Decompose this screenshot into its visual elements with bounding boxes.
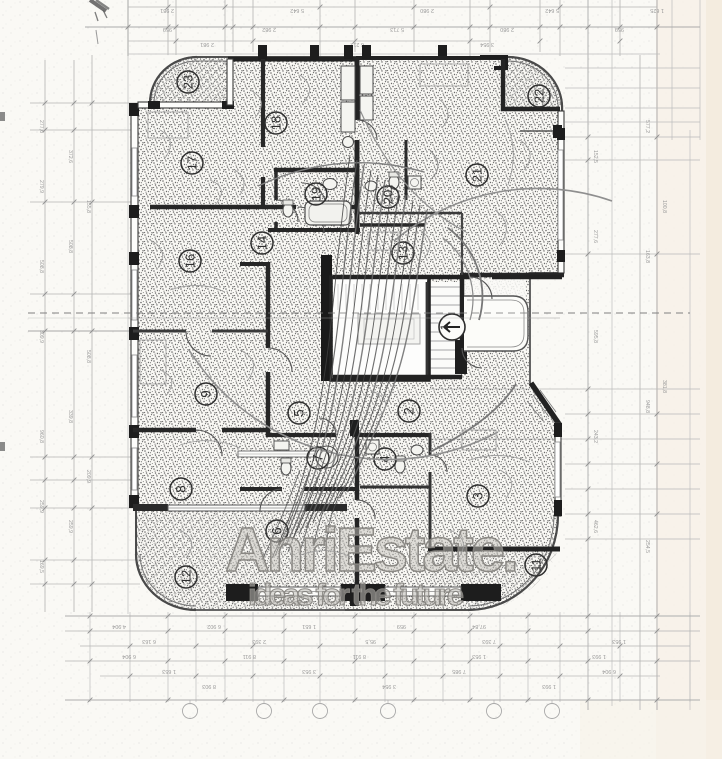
- svg-text:1 993: 1 993: [592, 653, 606, 659]
- svg-text:5 642: 5 642: [545, 7, 559, 13]
- svg-text:5 713: 5 713: [390, 26, 404, 32]
- svg-text:960,8: 960,8: [38, 430, 44, 443]
- svg-text:2 393: 2 393: [252, 638, 266, 644]
- svg-text:ideas for the future: ideas for the future: [248, 577, 464, 612]
- svg-text:948,8: 948,8: [644, 400, 650, 413]
- svg-text:155,8: 155,8: [85, 200, 91, 213]
- svg-text:21: 21: [470, 168, 485, 182]
- svg-text:959: 959: [397, 623, 406, 629]
- svg-text:2: 2: [402, 407, 417, 415]
- svg-text:1 993: 1 993: [542, 683, 556, 689]
- svg-text:8 911: 8 911: [353, 653, 366, 659]
- svg-text:11: 11: [529, 558, 544, 572]
- svg-text:12: 12: [179, 570, 194, 584]
- svg-text:1 651: 1 651: [302, 623, 316, 629]
- svg-text:577,2: 577,2: [644, 120, 650, 133]
- svg-text:209,9: 209,9: [85, 470, 91, 483]
- svg-text:595,8: 595,8: [592, 330, 598, 343]
- svg-text:16: 16: [183, 254, 198, 268]
- svg-text:97,84: 97,84: [472, 623, 486, 629]
- svg-text:9: 9: [199, 390, 214, 398]
- svg-text:7 393: 7 393: [482, 638, 496, 644]
- svg-text:8 903: 8 903: [202, 683, 216, 689]
- svg-text:4 904: 4 904: [112, 623, 126, 629]
- svg-text:95,5: 95,5: [365, 638, 376, 644]
- svg-text:7 985: 7 985: [452, 668, 466, 674]
- svg-text:6 904: 6 904: [122, 653, 136, 659]
- svg-text:2 981: 2 981: [200, 41, 214, 47]
- svg-text:5 642: 5 642: [290, 7, 304, 13]
- svg-text:100,8: 100,8: [661, 200, 667, 213]
- svg-text:339,8: 339,8: [67, 410, 73, 423]
- svg-text:277,6: 277,6: [38, 120, 44, 133]
- svg-text:AnriEstate.: AnriEstate.: [225, 516, 518, 585]
- svg-text:17: 17: [185, 156, 200, 170]
- svg-text:22: 22: [532, 89, 547, 103]
- svg-text:259,9: 259,9: [38, 500, 44, 513]
- svg-text:163,8: 163,8: [644, 250, 650, 263]
- svg-text:3: 3: [471, 492, 486, 500]
- svg-text:1 625: 1 625: [650, 7, 664, 13]
- svg-text:6 904: 6 904: [602, 668, 616, 674]
- svg-text:23: 23: [181, 75, 196, 89]
- svg-text:259,9: 259,9: [67, 520, 73, 533]
- svg-text:309,9: 309,9: [38, 330, 44, 343]
- svg-text:1 953: 1 953: [612, 638, 626, 644]
- svg-text:18: 18: [269, 116, 284, 130]
- svg-text:372,6: 372,6: [67, 150, 73, 163]
- svg-text:5: 5: [292, 409, 307, 417]
- svg-text:381,8: 381,8: [661, 380, 667, 393]
- svg-text:254,5: 254,5: [644, 540, 650, 553]
- svg-text:6 163: 6 163: [142, 638, 156, 644]
- svg-text:1 953: 1 953: [472, 653, 486, 659]
- svg-text:462,6: 462,6: [592, 520, 598, 533]
- svg-text:3 953: 3 953: [302, 668, 316, 674]
- svg-text:959: 959: [163, 26, 172, 32]
- svg-text:1: 1: [439, 324, 451, 330]
- svg-text:2 981: 2 981: [160, 7, 174, 13]
- svg-text:2 982: 2 982: [262, 26, 276, 32]
- svg-text:6 902: 6 902: [207, 623, 221, 629]
- svg-text:279,9: 279,9: [38, 180, 44, 193]
- svg-text:508,8: 508,8: [38, 260, 44, 273]
- svg-text:8 911: 8 911: [243, 653, 256, 659]
- svg-text:14: 14: [255, 236, 270, 250]
- svg-text:8: 8: [174, 485, 189, 493]
- svg-text:169,5: 169,5: [38, 560, 44, 573]
- svg-text:243,2: 243,2: [592, 430, 598, 443]
- svg-text:2 980: 2 980: [500, 26, 514, 32]
- svg-text:959: 959: [615, 26, 624, 32]
- svg-text:2 980: 2 980: [420, 7, 434, 13]
- svg-text:1 653: 1 653: [162, 668, 176, 674]
- svg-text:3 954: 3 954: [382, 683, 396, 689]
- svg-text:508,8: 508,8: [67, 240, 73, 253]
- svg-text:277,6: 277,6: [592, 230, 598, 243]
- svg-text:152,5: 152,5: [592, 150, 598, 163]
- svg-text:19: 19: [309, 187, 324, 201]
- svg-text:3 954: 3 954: [480, 41, 494, 47]
- svg-text:508,8: 508,8: [85, 350, 91, 363]
